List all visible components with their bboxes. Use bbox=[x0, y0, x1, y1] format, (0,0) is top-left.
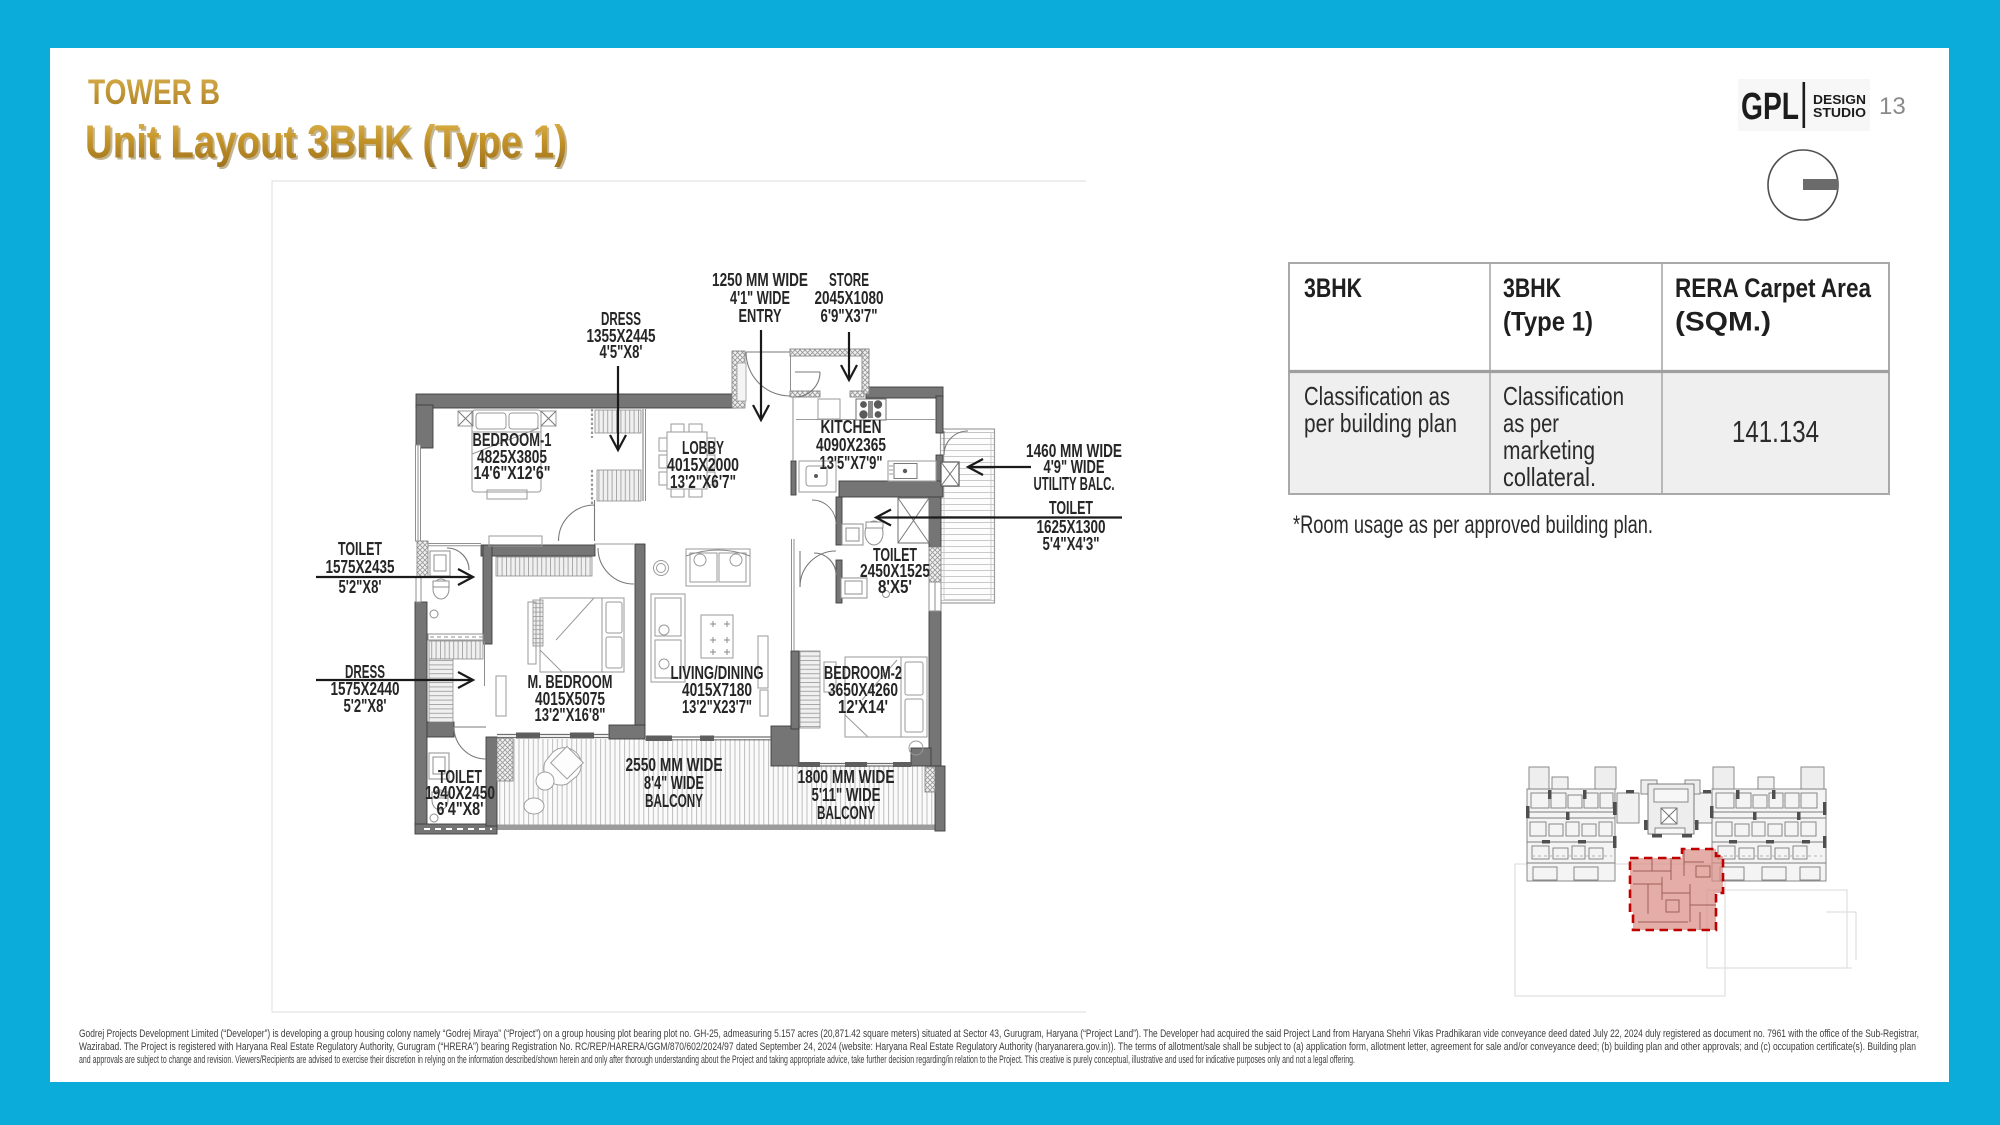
svg-text:per building plan: per building plan bbox=[1304, 408, 1457, 438]
svg-text:14'6"X12'6": 14'6"X12'6" bbox=[474, 462, 551, 483]
svg-text:marketing: marketing bbox=[1503, 435, 1595, 465]
svg-text:(Type 1): (Type 1) bbox=[1503, 307, 1593, 337]
svg-text:13'2"X16'8": 13'2"X16'8" bbox=[535, 704, 606, 725]
svg-text:and approvals are subject to c: and approvals are subject to change and … bbox=[79, 1054, 1355, 1066]
svg-text:GPL: GPL bbox=[1741, 86, 1799, 128]
svg-text:13'5"X7'9": 13'5"X7'9" bbox=[820, 452, 883, 473]
svg-text:BALCONY: BALCONY bbox=[645, 790, 703, 811]
svg-text:13'2"X6'7": 13'2"X6'7" bbox=[670, 471, 736, 492]
svg-text:DESIGN: DESIGN bbox=[1813, 93, 1866, 107]
svg-text:8'X5': 8'X5' bbox=[878, 576, 912, 597]
svg-text:5'2"X8': 5'2"X8' bbox=[344, 695, 387, 716]
svg-text:Classification: Classification bbox=[1503, 381, 1624, 411]
svg-text:(SQM.): (SQM.) bbox=[1675, 307, 1771, 337]
svg-text:Godrej Projects Development Li: Godrej Projects Development Limited (“De… bbox=[79, 1028, 1919, 1040]
svg-text:STUDIO: STUDIO bbox=[1813, 106, 1866, 120]
svg-text:4'5"X8': 4'5"X8' bbox=[600, 341, 643, 362]
svg-text:Unit Layout 3BHK (Type 1): Unit Layout 3BHK (Type 1) bbox=[85, 116, 567, 168]
svg-text:ENTRY: ENTRY bbox=[739, 305, 782, 326]
svg-text:TOILET: TOILET bbox=[1049, 497, 1093, 518]
svg-text:1575X2435: 1575X2435 bbox=[326, 556, 395, 577]
svg-text:5'2"X8': 5'2"X8' bbox=[339, 576, 382, 597]
svg-text:13'2"X23'7": 13'2"X23'7" bbox=[682, 696, 752, 717]
svg-text:Wazirabad. The Project is regi: Wazirabad. The Project is registered wit… bbox=[79, 1041, 1916, 1053]
svg-text:RERA Carpet Area: RERA Carpet Area bbox=[1675, 273, 1872, 303]
svg-text:UTILITY BALC.: UTILITY BALC. bbox=[1034, 473, 1115, 494]
svg-text:collateral.: collateral. bbox=[1503, 462, 1596, 492]
svg-text:141.134: 141.134 bbox=[1732, 414, 1819, 449]
svg-text:Classification as: Classification as bbox=[1304, 381, 1450, 411]
svg-text:6'9"X3'7": 6'9"X3'7" bbox=[821, 305, 878, 326]
svg-text:TOWER B: TOWER B bbox=[88, 73, 220, 112]
svg-text:3BHK: 3BHK bbox=[1304, 273, 1362, 303]
svg-text:as per: as per bbox=[1503, 408, 1559, 438]
svg-text:6'4"X8': 6'4"X8' bbox=[437, 798, 484, 819]
svg-text:12'X14': 12'X14' bbox=[838, 696, 888, 717]
svg-text:*Room usage as per approved bu: *Room usage as per approved building pla… bbox=[1293, 511, 1653, 539]
svg-text:5'4"X4'3": 5'4"X4'3" bbox=[1043, 533, 1100, 554]
svg-text:13: 13 bbox=[1879, 93, 1906, 120]
svg-text:BALCONY: BALCONY bbox=[817, 802, 875, 823]
svg-text:3BHK: 3BHK bbox=[1503, 273, 1561, 303]
